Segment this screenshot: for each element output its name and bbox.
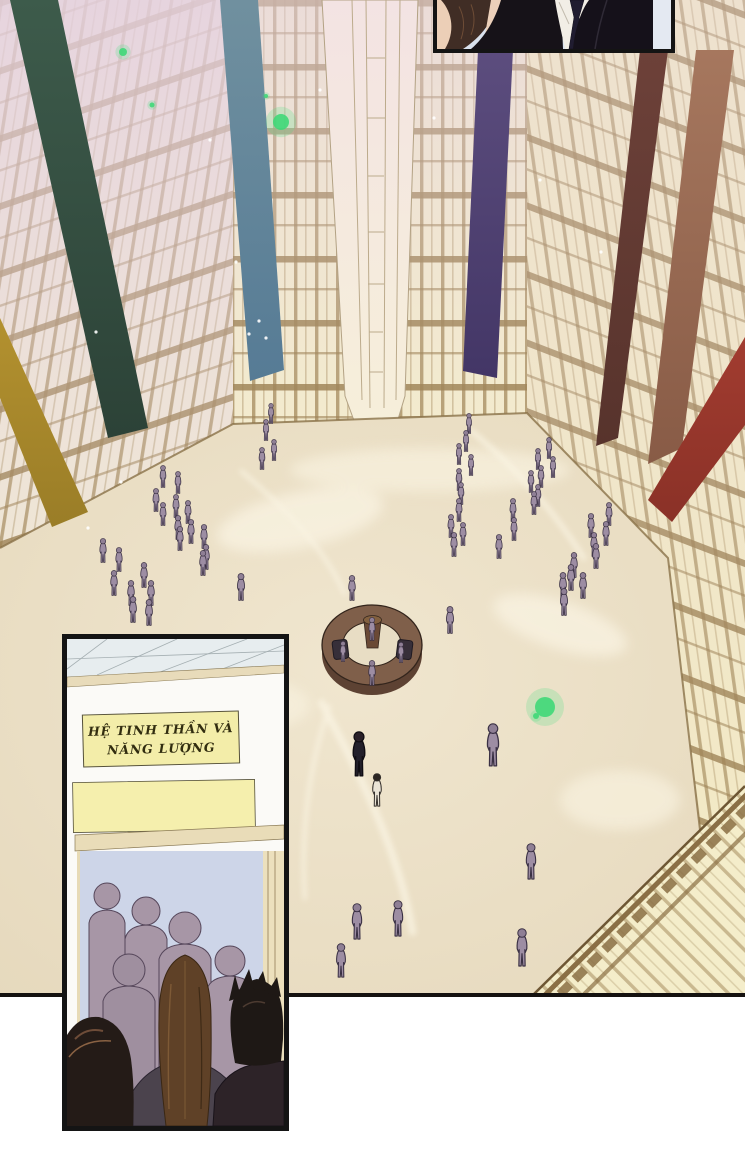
person-figure — [237, 574, 244, 601]
person-figure — [116, 547, 122, 571]
person-figure — [463, 430, 469, 451]
person-figure — [146, 600, 153, 626]
person-figure — [349, 575, 356, 600]
person-figure — [528, 470, 534, 492]
person-figure — [487, 724, 498, 766]
person-figure — [468, 454, 474, 475]
person-figure — [263, 419, 269, 440]
person-figure — [200, 550, 207, 575]
person-figure — [398, 642, 403, 662]
person-figure — [546, 437, 552, 458]
suits-art — [437, 0, 671, 49]
person-figure — [603, 521, 609, 545]
doorway-panel: HỆ TINH THẦN VÀ NĂNG LƯỢNG — [62, 634, 289, 1131]
person-figure — [353, 732, 365, 776]
blank-sign-board — [73, 779, 256, 832]
person-figure — [111, 570, 118, 595]
person-figure — [496, 534, 502, 558]
person-figure — [352, 904, 361, 939]
person-figure — [460, 522, 466, 545]
person-figure — [337, 944, 346, 977]
person-figure — [188, 519, 194, 543]
person-figure — [160, 465, 166, 487]
person-figure — [369, 617, 375, 640]
person-figure — [100, 538, 106, 562]
person-figure — [369, 660, 376, 685]
person-figure — [446, 607, 453, 634]
person-figure — [373, 774, 382, 806]
person-figure — [259, 447, 265, 469]
sign-line-2: NĂNG LƯỢNG — [107, 738, 216, 760]
person-figure — [526, 844, 535, 879]
person-figure — [175, 471, 181, 493]
person-figure — [511, 517, 517, 540]
person-figure — [173, 494, 179, 517]
person-figure — [517, 929, 527, 966]
person-figure — [177, 526, 183, 550]
person-figure — [531, 491, 537, 514]
person-figure — [141, 562, 148, 587]
person-figure — [456, 498, 462, 521]
suit-right — [573, 0, 653, 49]
person-figure — [593, 543, 600, 568]
person-figure — [538, 465, 544, 487]
person-figure — [568, 565, 575, 591]
person-figure — [550, 456, 556, 477]
person-figure — [130, 597, 137, 623]
comic-page: HỆ TINH THẦN VÀ NĂNG LƯỢNG — [0, 0, 745, 1152]
person-figure — [456, 443, 462, 464]
suits-panel — [433, 0, 675, 53]
person-figure — [160, 502, 166, 525]
person-figure — [451, 532, 457, 556]
person-figure — [271, 439, 277, 460]
sign-text: HỆ TINH THẦN VÀ NĂNG LƯỢNG — [82, 711, 239, 767]
person-figure — [153, 488, 159, 511]
person-figure — [393, 901, 402, 936]
person-figure — [560, 589, 567, 616]
person-figure — [580, 573, 587, 599]
person-figure — [340, 641, 345, 661]
person-figure — [268, 403, 273, 423]
